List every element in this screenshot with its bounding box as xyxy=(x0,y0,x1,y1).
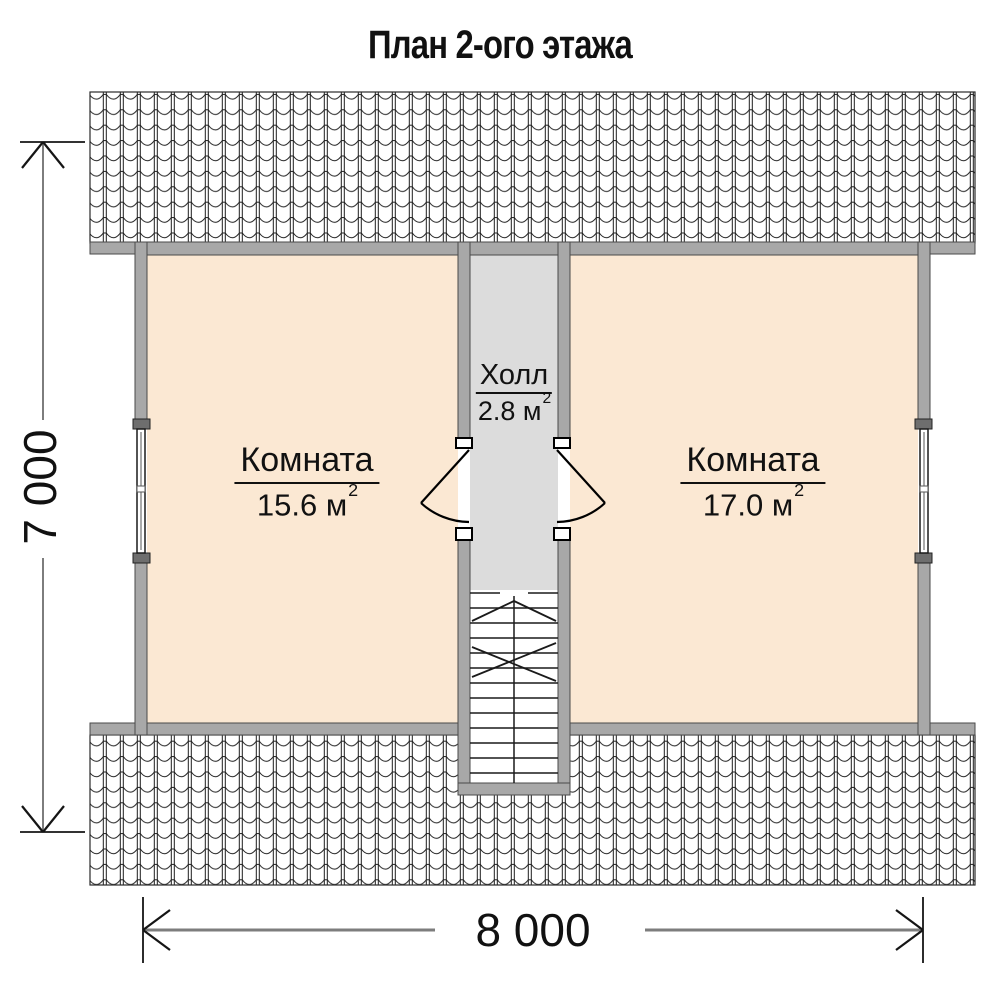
hall-label: Холл 2.8 м2 xyxy=(476,360,552,426)
dimension-width-value: 8 000 xyxy=(475,903,590,957)
floor-plan-page: План 2-ого этажа Комната 15.6 м2 Комната… xyxy=(0,0,1000,1000)
room-left-name: Комната xyxy=(234,443,379,484)
hall-area: 2.8 м2 xyxy=(476,397,552,425)
room-right-area: 17.0 м2 xyxy=(680,489,825,522)
roof-top-hatch xyxy=(90,92,975,243)
room-right-name: Комната xyxy=(680,443,825,484)
room-left-label: Комната 15.6 м2 xyxy=(234,443,379,522)
room-left-area: 15.6 м2 xyxy=(234,489,379,522)
dimension-height-value: 7 000 xyxy=(13,429,67,544)
room-right-label: Комната 17.0 м2 xyxy=(680,443,825,522)
hall-name: Холл xyxy=(476,360,552,394)
page-title: План 2-ого этажа xyxy=(90,24,910,66)
floor-plan-drawing xyxy=(0,0,1000,1000)
